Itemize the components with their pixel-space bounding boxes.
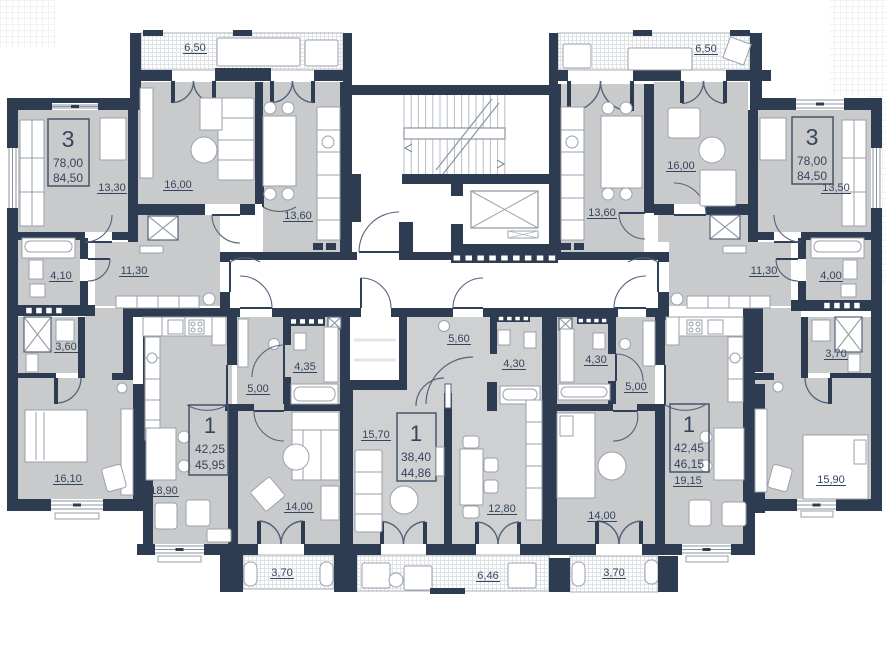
svg-text:6,46: 6,46 bbox=[477, 570, 498, 582]
svg-text:13,50: 13,50 bbox=[822, 182, 850, 194]
svg-text:84,50: 84,50 bbox=[53, 171, 83, 185]
svg-text:44,86: 44,86 bbox=[401, 466, 431, 480]
svg-text:13,30: 13,30 bbox=[98, 182, 126, 194]
svg-text:3: 3 bbox=[806, 124, 819, 150]
svg-text:4,00: 4,00 bbox=[820, 270, 841, 282]
svg-text:3,70: 3,70 bbox=[271, 567, 292, 579]
svg-text:4,30: 4,30 bbox=[585, 354, 606, 366]
svg-text:3: 3 bbox=[62, 126, 75, 152]
svg-text:16,10: 16,10 bbox=[54, 473, 82, 485]
svg-text:4,35: 4,35 bbox=[294, 361, 315, 373]
svg-text:38,40: 38,40 bbox=[401, 450, 431, 464]
svg-text:3,60: 3,60 bbox=[55, 341, 76, 353]
svg-text:11,30: 11,30 bbox=[751, 265, 778, 277]
svg-text:42,25: 42,25 bbox=[195, 442, 225, 456]
svg-text:14,00: 14,00 bbox=[285, 501, 313, 513]
svg-text:3,70: 3,70 bbox=[603, 567, 624, 579]
svg-text:16,00: 16,00 bbox=[667, 160, 695, 172]
svg-text:1: 1 bbox=[204, 413, 216, 438]
svg-text:46,15: 46,15 bbox=[674, 457, 704, 471]
svg-text:15,90: 15,90 bbox=[817, 474, 845, 486]
svg-text:5,00: 5,00 bbox=[625, 381, 646, 393]
svg-text:12,80: 12,80 bbox=[488, 503, 516, 515]
svg-text:5,00: 5,00 bbox=[247, 383, 268, 395]
svg-text:84,50: 84,50 bbox=[797, 169, 827, 183]
svg-text:4,10: 4,10 bbox=[50, 270, 71, 282]
svg-text:45,95: 45,95 bbox=[195, 458, 225, 472]
svg-text:13,60: 13,60 bbox=[588, 207, 616, 219]
svg-text:1: 1 bbox=[410, 421, 422, 446]
svg-text:5,60: 5,60 bbox=[448, 333, 469, 345]
svg-text:4,30: 4,30 bbox=[503, 358, 524, 370]
svg-text:3,70: 3,70 bbox=[825, 348, 846, 360]
svg-text:78,00: 78,00 bbox=[797, 154, 827, 168]
svg-text:19,15: 19,15 bbox=[674, 475, 702, 487]
svg-text:6,50: 6,50 bbox=[695, 43, 716, 55]
svg-text:15,70: 15,70 bbox=[362, 429, 390, 441]
svg-text:13,60: 13,60 bbox=[284, 210, 312, 222]
svg-text:18,90: 18,90 bbox=[150, 485, 178, 497]
svg-text:11,30: 11,30 bbox=[121, 265, 148, 277]
svg-text:42,45: 42,45 bbox=[674, 441, 704, 455]
svg-text:14,00: 14,00 bbox=[588, 510, 616, 522]
svg-text:1: 1 bbox=[683, 412, 695, 437]
svg-text:78,00: 78,00 bbox=[53, 156, 83, 170]
svg-text:16,00: 16,00 bbox=[164, 179, 192, 191]
svg-text:6,50: 6,50 bbox=[184, 42, 205, 54]
